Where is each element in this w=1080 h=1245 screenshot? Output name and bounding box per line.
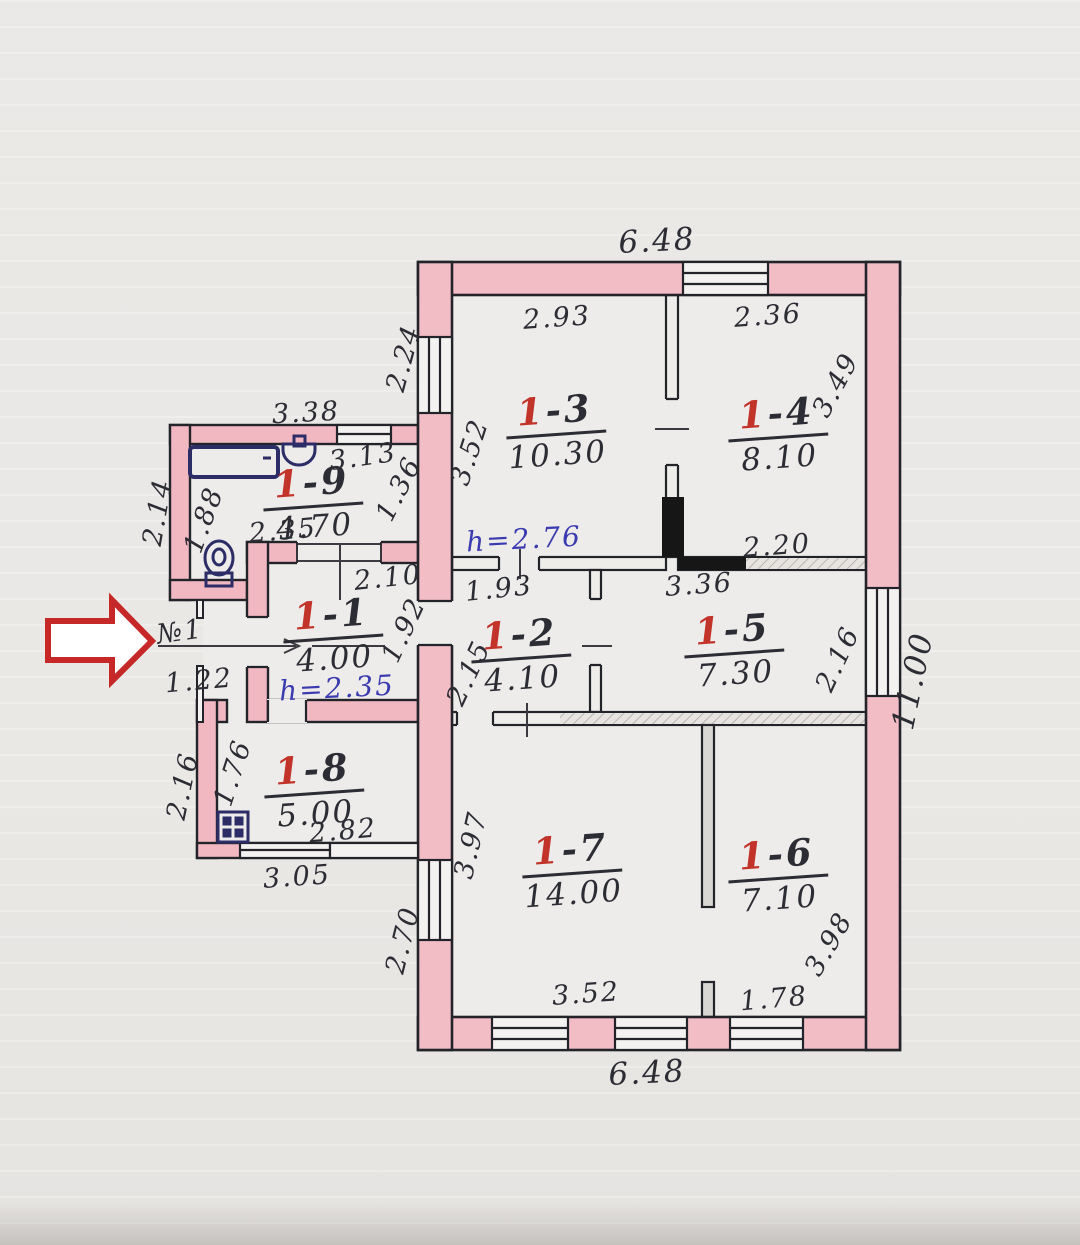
dim-r14-bottom: 2.20 <box>742 528 812 564</box>
room-area: 5.00 <box>265 793 367 836</box>
room-area: 7.10 <box>729 878 831 921</box>
dim-bottom-width: 6.48 <box>608 1053 687 1093</box>
height-note-upper: h=2.76 <box>465 519 582 558</box>
room-number: 1-7 <box>519 824 622 879</box>
room-label-1-7: 1-7 14.00 <box>519 824 625 916</box>
window-icon <box>615 1017 687 1050</box>
dim-kitchen-bottom: 3.05 <box>262 859 332 895</box>
room-area: 10.30 <box>507 434 609 477</box>
dim-r14-width: 2.36 <box>733 298 803 334</box>
room-label-1-8: 1-8 5.00 <box>261 744 367 836</box>
room-area: 4.10 <box>472 658 574 701</box>
door-opening <box>457 710 493 727</box>
dim-r16-bottom: 1.78 <box>739 981 810 1018</box>
room-label-1-3: 1-3 10.30 <box>503 385 609 477</box>
room-label-1-6: 1-6 7.10 <box>725 829 831 921</box>
room-label-1-2: 1-2 4.10 <box>468 609 574 701</box>
room-area: 7.30 <box>685 653 787 696</box>
room-number: 1-1 <box>280 589 383 644</box>
room-number: 1-8 <box>261 744 364 799</box>
door-opening <box>245 617 270 667</box>
room-area: 8.10 <box>729 437 831 480</box>
entrance-door-no: №1 <box>155 613 206 650</box>
room-label-1-5: 1-5 7.30 <box>681 604 787 696</box>
floor-plan: 6.48 6.48 11.00 2.93 2.36 3.49 2.24 3.52… <box>0 0 1080 1245</box>
window-icon <box>492 1017 568 1050</box>
room-number: 1-4 <box>725 388 828 443</box>
room-number: 1-2 <box>468 609 571 664</box>
room-number: 1-9 <box>260 457 363 512</box>
window-icon <box>730 1017 803 1050</box>
window-icon <box>683 262 768 295</box>
room-label-1-9: 1-9 4.70 <box>260 457 366 549</box>
room-area: 4.70 <box>264 506 366 549</box>
dim-top-width: 6.48 <box>618 221 697 261</box>
window-icon <box>418 860 452 940</box>
room-number: 1-5 <box>681 604 784 659</box>
room-label-1-1: 1-1 4.00 <box>280 589 386 681</box>
door-opening <box>588 599 603 665</box>
dim-r15-width: 3.36 <box>664 567 734 603</box>
dim-annex-top: 3.38 <box>271 396 341 431</box>
dim-r13-width: 2.93 <box>522 300 592 336</box>
room-number: 1-3 <box>503 385 606 440</box>
room-number: 1-6 <box>725 829 828 884</box>
door-opening <box>664 399 680 465</box>
dim-r17-bottom: 3.52 <box>551 976 621 1012</box>
room-area: 14.00 <box>523 873 625 916</box>
dim-entrance-width: 1.22 <box>164 663 235 700</box>
room-label-1-4: 1-4 8.10 <box>725 388 831 480</box>
room-area: 4.00 <box>284 638 386 681</box>
entrance-arrow-icon <box>48 600 152 681</box>
window-icon <box>418 337 452 413</box>
